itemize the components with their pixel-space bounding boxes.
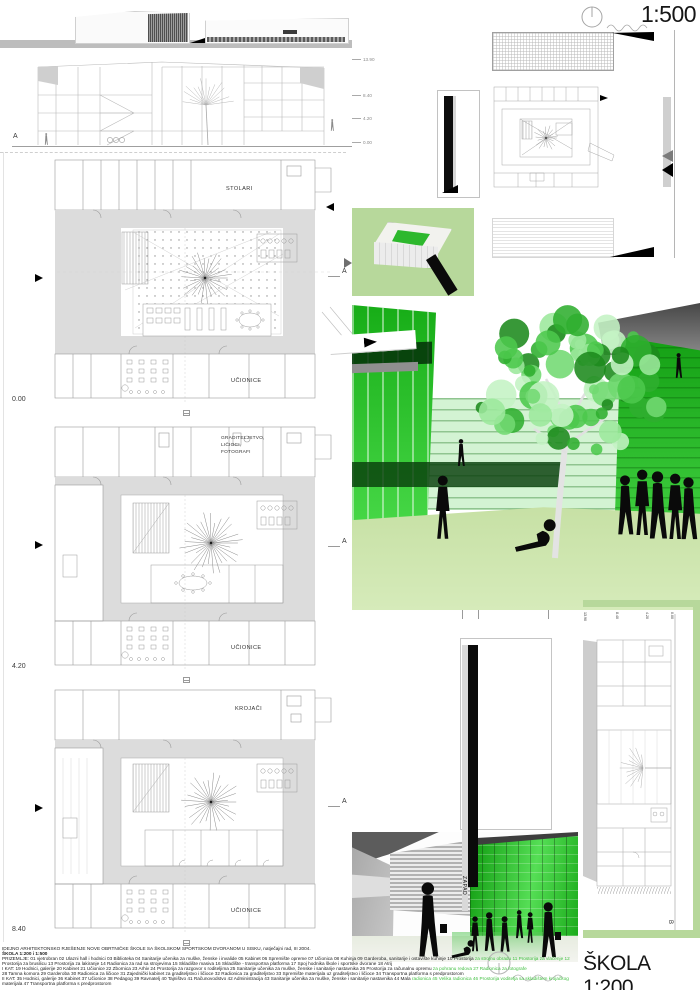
- plan-level-2: 8.40: [12, 926, 26, 933]
- plan-a-line-0: [328, 276, 340, 277]
- plan-a-line-2: [328, 806, 340, 807]
- plan-cut-mark-1: [183, 677, 190, 683]
- plan-a-marker-1: A: [342, 538, 347, 545]
- scale-label-500: 1:500: [641, 1, 696, 28]
- section-a-drawing: [12, 55, 352, 155]
- floor-plan-ground: STOLARI UČIONICE: [33, 158, 335, 408]
- plan-level-1: 4.20: [12, 663, 26, 670]
- site-wedge-top: [612, 32, 654, 41]
- bridge-arrow-icon: [364, 337, 378, 348]
- svg-text:UČIONICE: UČIONICE: [231, 377, 262, 384]
- section-b-drawing: 13.90 8.40 4.20 0.00 B: [580, 600, 693, 938]
- svg-text:LIČIOCI,: LIČIOCI,: [221, 441, 241, 448]
- axonometric-panel: [352, 208, 474, 296]
- trim-line-left: [3, 152, 4, 942]
- floor-plan-first: GRADITELJSTVO, LIČIOCI, FOTOGRAFI UČIONI…: [33, 425, 335, 675]
- elevation-building-right-base: [207, 37, 345, 42]
- svg-text:0.00: 0.00: [670, 612, 674, 619]
- svg-text:UČIONICE: UČIONICE: [231, 644, 262, 651]
- presentation-board: A 13.90 8.40 4.20 0.00: [0, 0, 700, 990]
- trim-line-top: [0, 152, 346, 153]
- legend-lines: PRIZEMLJE: 01 vjetrobran 02 Ulazni hall …: [2, 956, 596, 986]
- svg-text:B: B: [667, 920, 673, 924]
- level-mark-000: 0.00: [352, 140, 372, 145]
- site-plan-school: [492, 85, 618, 201]
- svg-text:13.90: 13.90: [583, 612, 587, 621]
- svg-text:KROJAČI: KROJAČI: [235, 705, 262, 712]
- plan-cut-mark-0: [183, 410, 190, 416]
- level-mark-840: 8.40: [352, 93, 372, 98]
- level-mark-420: 4.20: [352, 116, 372, 121]
- entry-section-tick-1: [462, 610, 463, 619]
- hall-elevation-strip: [453, 96, 456, 192]
- site-boundary-line: [674, 30, 675, 258]
- entry-section-tick-3: [548, 610, 549, 619]
- entry-section-tick-2: [478, 610, 479, 619]
- sports-field-plan: [492, 32, 614, 71]
- plan-a-marker-0: A: [342, 268, 347, 275]
- scale-label-200: ŠKOLA 1:200: [583, 952, 700, 990]
- svg-text:GRADITELJSTVO,: GRADITELJSTVO,: [221, 435, 265, 441]
- plan-a-line-1: [328, 546, 340, 547]
- north-compass-icon: [580, 5, 604, 29]
- plan-a-marker-2: A: [342, 798, 347, 805]
- plan-level-0: 0.00: [12, 396, 26, 403]
- hall-elevation: [437, 90, 480, 198]
- section-a-marker: A: [13, 133, 18, 140]
- tower-label: ZAPAD: [461, 876, 467, 895]
- lower-field-plan: [492, 218, 614, 258]
- legend-line: materijala 47 Transportna platforma s pr…: [2, 981, 596, 986]
- floor-plan-second: KROJAČI UČIONICE: [33, 688, 335, 938]
- svg-text:FOTOGRAFI: FOTOGRAFI: [221, 449, 251, 455]
- site-wedge-bottom: [610, 247, 654, 257]
- legend-block: IDEJNO ARHITEKTONSKO RJEŠENJE NOVE OBRTN…: [2, 946, 596, 986]
- svg-text:UČIONICE: UČIONICE: [231, 907, 262, 914]
- hall-elevation-shaft: [444, 96, 453, 192]
- entry-tower: [468, 645, 478, 887]
- elevation-building-left-louvers: [148, 13, 188, 42]
- svg-text:4.20: 4.20: [645, 612, 649, 619]
- svg-text:8.40: 8.40: [615, 612, 619, 619]
- level-mark-1390: 13.90: [352, 57, 375, 62]
- axon-arrow: [344, 258, 352, 268]
- elevation-building-right-vent: [283, 30, 297, 34]
- svg-text:STOLARI: STOLARI: [226, 186, 253, 192]
- axon-ramp: [426, 254, 458, 295]
- section-b-frame-right: [693, 600, 700, 938]
